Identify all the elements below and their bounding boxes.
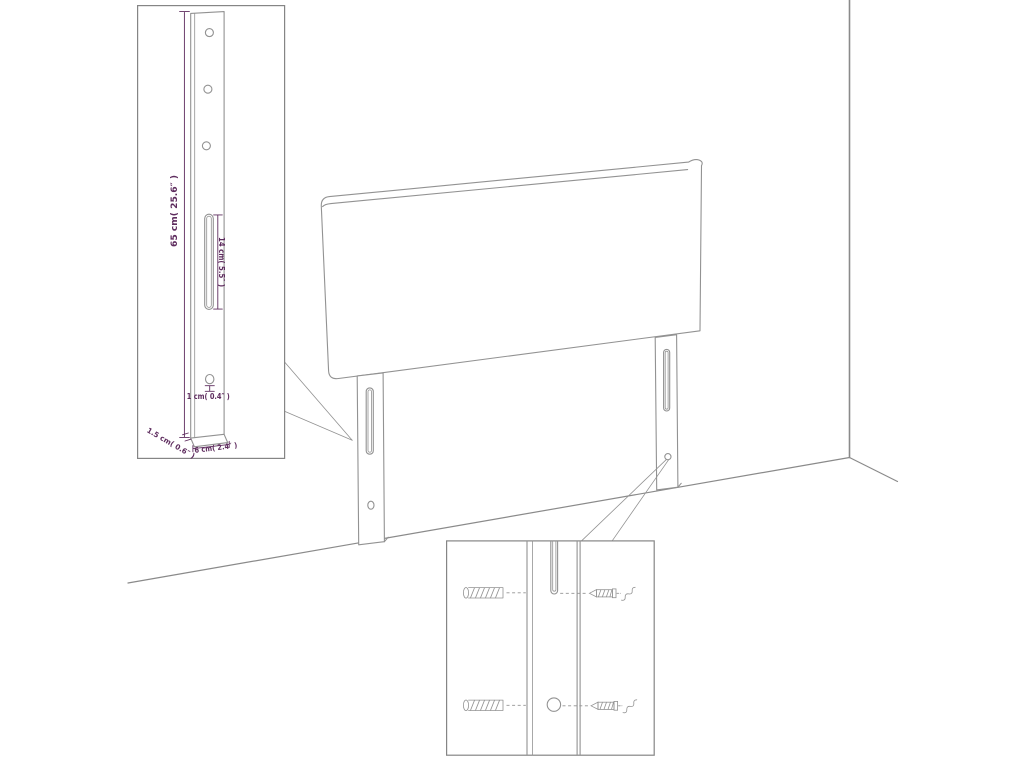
product-dimension-image: 65 cm( 25.6″ ) 14 cm( 5.5″ ) 1 cm( 0.4″ …	[0, 0, 1024, 768]
slot-length-label: 14 cm( 5.5″ )	[217, 237, 226, 287]
hole-diameter-label: 1 cm( 0.4″ )	[187, 392, 230, 401]
headboard-panel-outline	[321, 160, 702, 379]
mount-detail-inset	[447, 541, 655, 755]
leg-detail-callout-line-2	[285, 411, 352, 440]
floor-line-right	[850, 458, 898, 482]
mount-detail-callout-line-1	[582, 460, 667, 541]
leg-detail-inset: 65 cm( 25.6″ ) 14 cm( 5.5″ ) 1 cm( 0.4″ …	[138, 6, 285, 461]
mount-detail-callout-lines	[582, 460, 669, 541]
headboard-left-leg	[357, 373, 388, 545]
assembly-diagram: 65 cm( 25.6″ ) 14 cm( 5.5″ ) 1 cm( 0.4″ …	[0, 0, 1024, 768]
left-leg-face	[357, 373, 384, 545]
leg-height-label: 65 cm( 25.6″ )	[170, 175, 180, 247]
headboard-panel	[321, 160, 702, 379]
mount-detail-callout-line-2	[612, 460, 668, 541]
